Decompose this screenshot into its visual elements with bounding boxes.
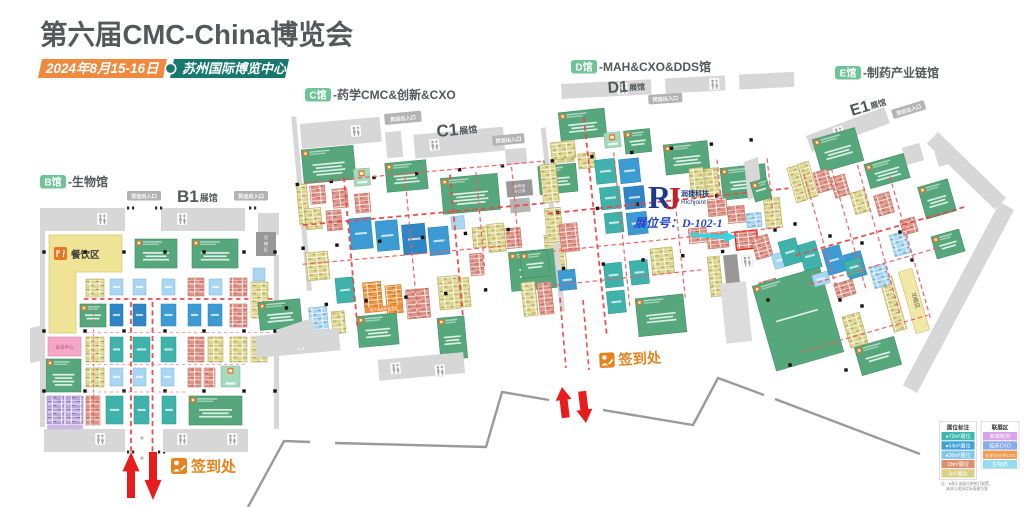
svg-text:展位标注: 展位标注 bbox=[947, 424, 970, 432]
svg-text:货运出入口: 货运出入口 bbox=[131, 192, 157, 200]
svg-text:第六届CMC-China博览会: 第六届CMC-China博览会 bbox=[40, 19, 354, 50]
svg-text:货运出入口: 货运出入口 bbox=[238, 192, 264, 200]
svg-text:苏州国际博览中心: 苏州国际博览中心 bbox=[182, 61, 287, 76]
svg-text:-生物馆: -生物馆 bbox=[68, 174, 108, 189]
svg-text:润捷科技: 润捷科技 bbox=[681, 189, 710, 198]
svg-text:会议中心: 会议中心 bbox=[56, 344, 74, 351]
svg-text:联展区: 联展区 bbox=[992, 424, 1009, 432]
svg-text:临床CXO: 临床CXO bbox=[989, 442, 1011, 450]
svg-text:E馆: E馆 bbox=[840, 66, 857, 79]
svg-text:会务组: 会务组 bbox=[513, 183, 525, 189]
svg-text:签到处: 签到处 bbox=[617, 349, 662, 369]
svg-text:签到处: 签到处 bbox=[190, 458, 237, 476]
svg-text:●54m²展位: ●54m²展位 bbox=[945, 442, 970, 450]
svg-text:展位号：D-102-1: 展位号：D-102-1 bbox=[633, 216, 723, 230]
svg-text:具体以现场实际搭建为准: 具体以现场实际搭建为准 bbox=[946, 486, 988, 491]
svg-text:-MAH&CXO&DDS馆: -MAH&CXO&DDS馆 bbox=[599, 59, 711, 74]
svg-text:办公室: 办公室 bbox=[514, 188, 526, 194]
svg-text:●72m²展位: ●72m²展位 bbox=[945, 432, 970, 440]
svg-text:●36m²展位: ●36m²展位 bbox=[945, 451, 970, 459]
svg-text:Richjoint: Richjoint bbox=[681, 199, 706, 206]
svg-text:化学小分子CXO: 化学小分子CXO bbox=[985, 452, 1016, 459]
svg-text:D馆: D馆 bbox=[575, 60, 592, 73]
svg-text:区: 区 bbox=[264, 247, 268, 252]
svg-text:J: J bbox=[665, 180, 681, 216]
svg-text:注：●表示该展位带射灯配置，: 注：●表示该展位带射灯配置， bbox=[941, 481, 993, 486]
svg-text:B馆: B馆 bbox=[44, 175, 61, 188]
svg-text:高端制剂: 高端制剂 bbox=[990, 432, 1011, 440]
svg-text:梯: 梯 bbox=[264, 240, 268, 246]
svg-text:C馆: C馆 bbox=[309, 88, 326, 101]
svg-text:生物药: 生物药 bbox=[992, 460, 1008, 468]
svg-text:货: 货 bbox=[264, 234, 268, 240]
svg-text:9m²展位: 9m²展位 bbox=[948, 469, 967, 477]
svg-text:18m²展位: 18m²展位 bbox=[947, 460, 969, 468]
svg-text:-制药产业链馆: -制药产业链馆 bbox=[863, 65, 939, 80]
svg-text:2024年8月15-16日: 2024年8月15-16日 bbox=[45, 61, 160, 76]
svg-text:-药学CMC&创新&CXO: -药学CMC&创新&CXO bbox=[333, 87, 456, 102]
